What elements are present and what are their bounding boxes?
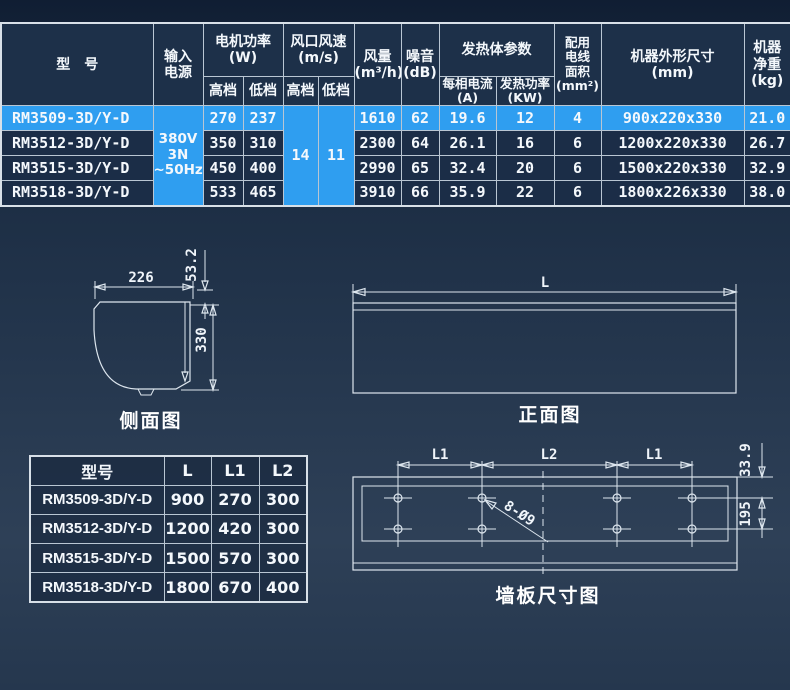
cell-motor-low: 465 [243, 181, 283, 206]
table-row: RM3509-3D/Y-D 380V 3N ~50Hz 270 237 14 1… [1, 106, 790, 131]
cell-model: RM3518-3D/Y-D [1, 181, 153, 206]
cell-motor-high: 270 [203, 106, 243, 131]
cell-net-weight: 32.9 [744, 156, 790, 181]
cell-net-weight: 26.7 [744, 131, 790, 156]
plate-outer-outline [353, 477, 737, 570]
col-header-model: 型 号 [1, 23, 153, 106]
size-cell-model: RM3512-3D/Y-D [30, 514, 164, 543]
col-header-input-power: 输入 电源 [153, 23, 203, 106]
cell-motor-low: 400 [243, 156, 283, 181]
cell-model: RM3509-3D/Y-D [1, 106, 153, 131]
table-row: RM3515-3D/Y-D 450 400 2990 65 32.4 20 6 … [1, 156, 790, 181]
cell-air-volume: 2990 [354, 156, 401, 181]
cell-phase-current: 32.4 [439, 156, 496, 181]
side-profile-outline [94, 302, 190, 389]
col-header-heater-params: 发热体参数 [439, 23, 554, 76]
cell-phase-current: 35.9 [439, 181, 496, 206]
size-header-l: L [164, 456, 211, 485]
table-row: RM3509-3D/Y-D 900 270 300 [30, 485, 307, 514]
cell-outline-size: 1500x220x330 [601, 156, 744, 181]
size-cell-model: RM3515-3D/Y-D [30, 544, 164, 573]
holes-callout-label: 8-Ø9 [501, 498, 538, 530]
cell-air-volume: 2300 [354, 131, 401, 156]
col-header-net-weight: 机器 净重 (kg) [744, 23, 790, 106]
size-cell-model: RM3518-3D/Y-D [30, 573, 164, 602]
cell-motor-low: 310 [243, 131, 283, 156]
col-header-outlet-speed: 风口风速 (m/s) [283, 23, 354, 76]
size-cell-l2: 300 [259, 514, 307, 543]
col-header-motor-power: 电机功率 (W) [203, 23, 283, 76]
cell-phase-current: 19.6 [439, 106, 496, 131]
col-header-noise: 噪音 (dB) [401, 23, 439, 106]
sub-header-phase-current: 每相电流 (A) [439, 76, 496, 106]
side-height-dimension: 330 [194, 327, 210, 352]
cell-motor-high: 533 [203, 181, 243, 206]
size-cell-l2: 300 [259, 544, 307, 573]
front-body-outline [353, 303, 736, 393]
table-row: RM3518-3D/Y-D 533 465 3910 66 35.9 22 6 … [1, 181, 790, 206]
cell-net-weight: 38.0 [744, 181, 790, 206]
cell-model: RM3515-3D/Y-D [1, 156, 153, 181]
cell-wire-area: 6 [554, 181, 601, 206]
wall-plate-caption: 墙板尺寸图 [495, 584, 600, 607]
cell-wire-area: 4 [554, 106, 601, 131]
size-cell-model: RM3509-3D/Y-D [30, 485, 164, 514]
sub-header-motor-high: 高档 [203, 76, 243, 106]
plate-inner-outline [362, 486, 728, 541]
wall-plate-diagram: L1 L2 L1 8-Ø9 33.9 195 墙板尺寸图 [345, 435, 790, 615]
cell-outline-size: 1800x226x330 [601, 181, 744, 206]
side-depth-dimension: 53.2 [184, 248, 200, 282]
cell-speed-low: 11 [318, 106, 354, 206]
front-length-dimension: L [541, 275, 549, 291]
plate-left-span-dimension: L1 [432, 447, 449, 463]
cell-phase-current: 26.1 [439, 131, 496, 156]
mounting-holes [384, 494, 706, 533]
side-view-diagram: 226 53.2 330 侧面图 [75, 235, 240, 440]
size-cell-l1: 270 [211, 485, 259, 514]
col-header-air-volume: 风量 (m³/h) [354, 23, 401, 106]
spec-sheet: 型 号 输入 电源 电机功率 (W) 风口风速 (m/s) 风量 (m³/h) … [0, 0, 790, 690]
plate-hole-gap-dimension: 195 [738, 501, 754, 526]
size-cell-l1: 670 [211, 573, 259, 602]
cell-heating-power: 20 [496, 156, 554, 181]
size-cell-l: 1500 [164, 544, 211, 573]
size-cell-l2: 300 [259, 485, 307, 514]
side-view-caption: 侧面图 [119, 410, 182, 432]
size-cell-l2: 400 [259, 573, 307, 602]
col-header-wire-area: 配用 电线 面积 (mm²) [554, 23, 601, 106]
cell-model: RM3512-3D/Y-D [1, 131, 153, 156]
cell-wire-area: 6 [554, 131, 601, 156]
sub-header-speed-high: 高档 [283, 76, 318, 106]
size-cell-l: 900 [164, 485, 211, 514]
sub-header-speed-low: 低档 [318, 76, 354, 106]
front-view-caption: 正面图 [518, 404, 581, 426]
cell-air-volume: 3910 [354, 181, 401, 206]
plate-top-offset-dimension: 33.9 [738, 443, 754, 477]
cell-noise: 64 [401, 131, 439, 156]
table-row: RM3515-3D/Y-D 1500 570 300 [30, 544, 307, 573]
size-header-model: 型号 [30, 456, 164, 485]
cell-air-volume: 1610 [354, 106, 401, 131]
table-row: RM3518-3D/Y-D 1800 670 400 [30, 573, 307, 602]
cell-noise: 65 [401, 156, 439, 181]
cell-heating-power: 22 [496, 181, 554, 206]
cell-outline-size: 1200x220x330 [601, 131, 744, 156]
table-row: RM3512-3D/Y-D 1200 420 300 [30, 514, 307, 543]
cell-motor-high: 450 [203, 156, 243, 181]
cell-net-weight: 21.0 [744, 106, 790, 131]
spec-table: 型 号 输入 电源 电机功率 (W) 风口风速 (m/s) 风量 (m³/h) … [0, 22, 790, 207]
cell-input-power: 380V 3N ~50Hz [153, 106, 203, 206]
outlet-notch [138, 389, 154, 395]
cell-motor-low: 237 [243, 106, 283, 131]
size-cell-l1: 570 [211, 544, 259, 573]
front-view-diagram: L 正面图 [345, 270, 745, 430]
plate-center-span-dimension: L2 [541, 447, 558, 463]
size-header-l1: L1 [211, 456, 259, 485]
cell-speed-high: 14 [283, 106, 318, 206]
sub-header-heating-power: 发热功率 (KW) [496, 76, 554, 106]
cell-heating-power: 16 [496, 131, 554, 156]
cell-noise: 66 [401, 181, 439, 206]
table-row: RM3512-3D/Y-D 350 310 2300 64 26.1 16 6 … [1, 131, 790, 156]
size-table: 型号 L L1 L2 RM3509-3D/Y-D 900 270 300 RM3… [29, 455, 308, 603]
size-cell-l1: 420 [211, 514, 259, 543]
sub-header-motor-low: 低档 [243, 76, 283, 106]
cell-motor-high: 350 [203, 131, 243, 156]
cell-noise: 62 [401, 106, 439, 131]
size-cell-l: 1200 [164, 514, 211, 543]
cell-outline-size: 900x220x330 [601, 106, 744, 131]
size-cell-l: 1800 [164, 573, 211, 602]
cell-wire-area: 6 [554, 156, 601, 181]
cell-heating-power: 12 [496, 106, 554, 131]
col-header-outline-size: 机器外形尺寸 (mm) [601, 23, 744, 106]
size-header-l2: L2 [259, 456, 307, 485]
side-width-dimension: 226 [128, 270, 153, 286]
plate-right-span-dimension: L1 [646, 447, 663, 463]
